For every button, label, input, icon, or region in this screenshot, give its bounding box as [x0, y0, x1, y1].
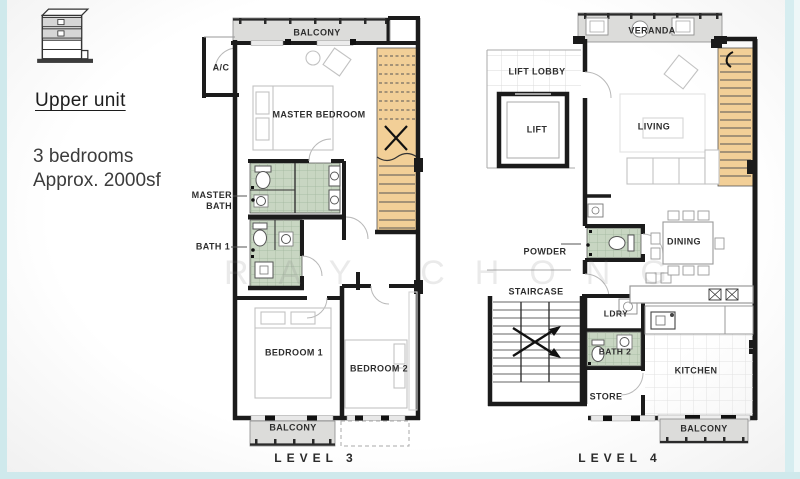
bottom-windows	[251, 416, 405, 421]
living-furniture	[620, 55, 719, 184]
level-3-floorplan	[195, 10, 430, 450]
right-edge-strip	[785, 0, 794, 479]
room-label-staircase: STAIRCASE	[509, 286, 564, 297]
room-label-bath1: BATH 1	[196, 241, 230, 252]
room-label-balcony-l4: BALCONY	[680, 423, 727, 434]
room-label-bedroom1: BEDROOM 1	[265, 347, 323, 358]
master-bed	[253, 48, 351, 150]
room-label-powder: POWDER	[524, 246, 567, 257]
internal-stairs	[377, 48, 417, 232]
room-label-living: LIVING	[638, 121, 670, 132]
unit-title: Upper unit	[35, 90, 126, 112]
room-label-lift-lobby: LIFT LOBBY	[509, 66, 566, 77]
powder-room	[561, 196, 663, 260]
room-label-bath2: BATH 2	[599, 347, 631, 358]
kitchen-room	[630, 273, 753, 416]
entry-door-arc	[585, 72, 611, 98]
room-label-master-bath: MASTER BATH	[180, 190, 232, 213]
room-label-dining: DINING	[667, 236, 701, 247]
master-bath-room	[248, 139, 344, 217]
room-label-kitchen: KITCHEN	[675, 365, 718, 376]
room-label-veranda: VERANDA	[628, 25, 675, 36]
room-label-balcony-bottom-l3: BALCONY	[269, 422, 316, 433]
bath1-room	[248, 220, 322, 290]
room-label-ac: A/C	[213, 62, 230, 73]
room-label-bedroom2: BEDROOM 2	[350, 363, 408, 374]
level-4-caption: LEVEL 4	[578, 451, 661, 465]
left-edge-strip	[0, 0, 7, 479]
floorplan-page: Upper unit 3 bedrooms Approx. 2000sf RAY…	[0, 0, 800, 479]
building-upper-unit-icon	[33, 5, 93, 65]
unit-area: Approx. 2000sf	[33, 170, 161, 192]
planter-dashed-outline	[341, 421, 409, 446]
room-label-balcony-top-l3: BALCONY	[293, 27, 340, 38]
room-label-master-bedroom: MASTER BEDROOM	[272, 109, 365, 120]
room-label-store: STORE	[590, 391, 623, 402]
room-label-ldry: LDRY	[604, 309, 628, 320]
bottom-edge-strip	[0, 472, 800, 479]
level-3-caption: LEVEL 3	[274, 451, 357, 465]
bed2	[345, 292, 417, 410]
room-label-lift: LIFT	[527, 124, 548, 135]
unit-bedrooms: 3 bedrooms	[33, 146, 133, 168]
right-edge-fade	[794, 0, 800, 479]
